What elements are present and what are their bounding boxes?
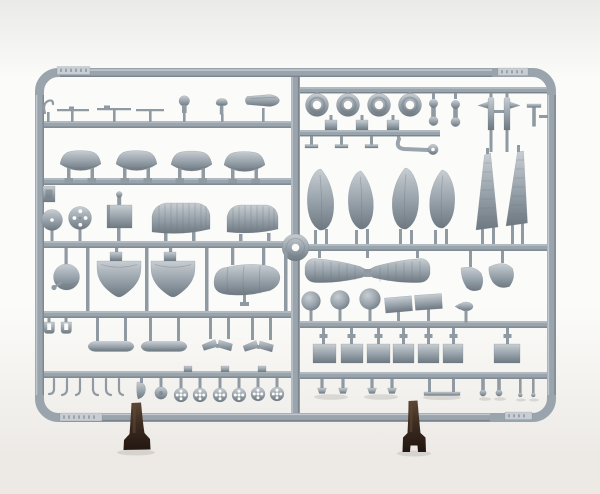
spoked-wheel-part bbox=[251, 387, 265, 401]
pipe-flange-hole bbox=[431, 148, 435, 152]
photo-background bbox=[0, 0, 600, 494]
ribbed-wing-panel-part bbox=[506, 151, 528, 226]
strut-rod-parts bbox=[57, 106, 164, 112]
sprue-gates bbox=[140, 378, 279, 388]
fuel-tank-half-part bbox=[60, 151, 101, 183]
display-stands bbox=[117, 401, 431, 457]
tire-part bbox=[306, 94, 329, 117]
bolt-part bbox=[455, 302, 473, 323]
wheel-spat-half-part bbox=[307, 169, 333, 230]
pulley-hub bbox=[159, 391, 163, 395]
parts-right-row4 bbox=[302, 251, 514, 323]
wheel-spat-half-part bbox=[430, 170, 455, 228]
fuselage-pod-part bbox=[214, 264, 280, 295]
plate-part bbox=[415, 294, 443, 311]
stand-left-highlight bbox=[133, 404, 136, 433]
parts-left-row3 bbox=[42, 192, 279, 242]
spinner-part bbox=[245, 95, 279, 107]
strut-fairing-part bbox=[88, 342, 134, 352]
comma-part bbox=[137, 382, 146, 399]
tire-part bbox=[337, 94, 360, 117]
cast-shadow bbox=[364, 394, 398, 400]
ribbed-wing-panel-part bbox=[476, 153, 498, 230]
flap-fairing-part bbox=[489, 264, 514, 288]
stand-shadow bbox=[117, 450, 155, 456]
step-part bbox=[424, 379, 460, 396]
wheel-hub bbox=[79, 217, 82, 220]
clevis-part bbox=[61, 322, 72, 334]
strut-fairing-part bbox=[141, 342, 187, 352]
parts-right-row5 bbox=[313, 328, 520, 363]
ball-part bbox=[331, 291, 350, 310]
sprue-gates bbox=[320, 328, 512, 344]
propeller-blade-pair-part bbox=[202, 340, 233, 352]
pin-part bbox=[388, 379, 397, 394]
exhaust-pipe-part bbox=[398, 139, 428, 150]
parts-right-row2 bbox=[305, 137, 438, 155]
sprue-gates bbox=[310, 137, 400, 145]
flap-fairing-part bbox=[461, 267, 483, 291]
parts-left-row1 bbox=[44, 95, 280, 123]
tire-part bbox=[368, 94, 391, 117]
pin-part bbox=[519, 379, 535, 393]
pin-foot bbox=[518, 393, 522, 397]
intake-scoop-part bbox=[151, 248, 195, 297]
lamp-part bbox=[179, 96, 190, 107]
stand-right bbox=[403, 401, 427, 453]
pin-part bbox=[318, 379, 327, 394]
stand-right-highlight bbox=[410, 402, 413, 432]
spoked-wheel-part bbox=[232, 388, 246, 402]
cast-shadow bbox=[529, 399, 539, 402]
ball-part bbox=[302, 292, 321, 311]
radiator-knob bbox=[116, 192, 122, 198]
machine-gun-part bbox=[478, 93, 520, 152]
tee-fitting-part bbox=[527, 104, 548, 127]
clevis-part bbox=[44, 322, 55, 334]
wheel-spat-half-part bbox=[392, 168, 418, 229]
wheel-hole bbox=[50, 218, 54, 222]
exhaust-stub-parts bbox=[49, 379, 123, 395]
cast-shadow bbox=[494, 397, 506, 401]
cap-part bbox=[216, 99, 228, 106]
sprue-tab-recess bbox=[46, 190, 53, 199]
pin-part bbox=[496, 379, 502, 396]
pin-part bbox=[368, 379, 377, 394]
propeller-blade-pair-part bbox=[243, 341, 274, 353]
ball-part bbox=[360, 289, 381, 310]
wheel-spat-half-part bbox=[348, 171, 373, 229]
sprue-gates bbox=[65, 248, 68, 265]
spoked-wheel-part bbox=[270, 387, 284, 401]
cast-shadow bbox=[516, 399, 526, 402]
parts-right-spats bbox=[307, 145, 527, 244]
hub-hole bbox=[292, 244, 300, 252]
valve-part bbox=[451, 100, 460, 126]
tire-part bbox=[399, 94, 422, 117]
intake-scoop-part bbox=[97, 248, 141, 297]
spoked-wheel-part bbox=[213, 388, 227, 402]
cast-shadow bbox=[314, 394, 348, 400]
hatch-plate-parts bbox=[313, 344, 520, 363]
lower-wing-part bbox=[305, 259, 430, 283]
plate-part bbox=[384, 296, 412, 313]
cast-shadow bbox=[479, 397, 491, 401]
parts-left-row4 bbox=[51, 248, 287, 311]
parts-left-row5 bbox=[44, 318, 274, 352]
valve-part bbox=[429, 99, 438, 125]
lamp-stem bbox=[182, 105, 187, 113]
pin-part bbox=[480, 379, 486, 396]
spoked-wheel-part bbox=[193, 388, 207, 402]
stand-left bbox=[124, 403, 151, 451]
tailplane-half-part bbox=[227, 205, 278, 233]
radiator-shade bbox=[107, 205, 110, 228]
cap-stem bbox=[220, 106, 224, 115]
pin-part bbox=[339, 379, 348, 394]
fuel-tank-half-part bbox=[116, 151, 157, 183]
runners bbox=[44, 77, 547, 413]
sprue-photo bbox=[0, 0, 600, 494]
tab-parts bbox=[325, 120, 399, 130]
sprue-gates bbox=[48, 318, 273, 341]
wire-hook-part bbox=[44, 100, 53, 113]
tailplane-half-part bbox=[152, 203, 210, 233]
parts-right-row6 bbox=[314, 379, 539, 402]
radiator-part bbox=[107, 205, 132, 228]
spoked-wheel-part bbox=[174, 388, 188, 402]
pin-foot bbox=[531, 393, 535, 397]
foot-parts bbox=[305, 145, 378, 149]
